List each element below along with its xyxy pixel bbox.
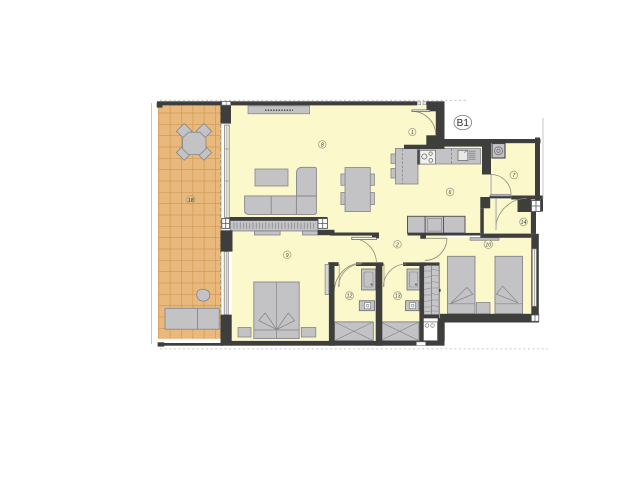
svg-text:B1: B1 — [457, 118, 470, 129]
svg-text:10: 10 — [485, 242, 491, 248]
svg-text:14: 14 — [521, 220, 527, 226]
svg-text:12: 12 — [347, 294, 353, 300]
svg-text:2: 2 — [395, 242, 399, 248]
svg-text:8: 8 — [321, 142, 324, 148]
svg-text:18: 18 — [188, 198, 194, 204]
svg-text:1: 1 — [411, 130, 414, 136]
svg-text:9: 9 — [286, 253, 289, 259]
svg-text:13: 13 — [395, 294, 401, 300]
svg-text:6: 6 — [449, 190, 452, 196]
